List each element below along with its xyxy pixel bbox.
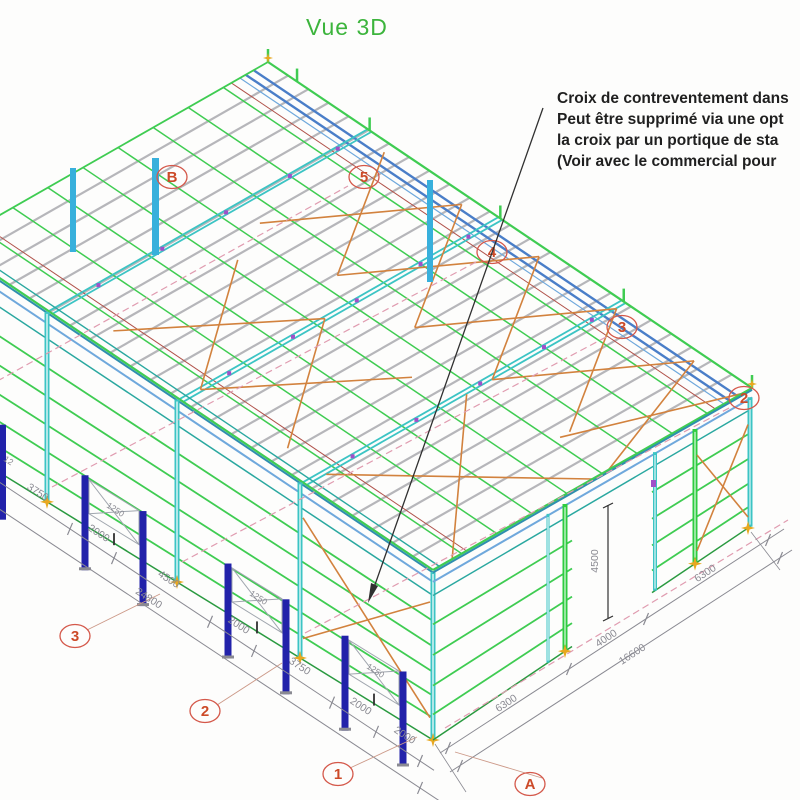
svg-text:1: 1 [334, 766, 342, 783]
view-title: Vue 3D [306, 14, 388, 41]
cad-3d-view-page: B5432321A3750200045002000375020002000248… [0, 0, 800, 800]
dimension-label: 3750 [287, 655, 313, 678]
dimension-label: 2000 [348, 695, 374, 718]
grid-bubble-3: 3 [607, 316, 637, 339]
annotation-line: (Voir avec le commercial pour [557, 151, 789, 172]
dimension-label: 6300 [493, 692, 519, 715]
svg-text:2: 2 [740, 390, 748, 407]
svg-text:3: 3 [618, 319, 626, 336]
svg-text:A: A [525, 776, 536, 793]
annotation-line: Croix de contreventement dans [557, 88, 789, 109]
dimension-label: 4500 [589, 549, 601, 573]
grid-bubble-2: 2 [190, 663, 282, 723]
svg-text:B: B [167, 169, 178, 186]
annotation-line: Peut être supprimé via une opt [557, 109, 789, 130]
annotation-line: la croix par un portique de sta [557, 130, 789, 151]
annotation-note: Croix de contreventement dansPeut être s… [557, 88, 789, 172]
dimension-label: 16600 [617, 641, 648, 667]
svg-text:5: 5 [360, 169, 368, 186]
svg-text:3: 3 [71, 628, 79, 645]
dimension-label: 4000 [593, 627, 619, 650]
svg-text:2: 2 [201, 703, 209, 720]
grid-bubble-A: A [455, 752, 545, 796]
